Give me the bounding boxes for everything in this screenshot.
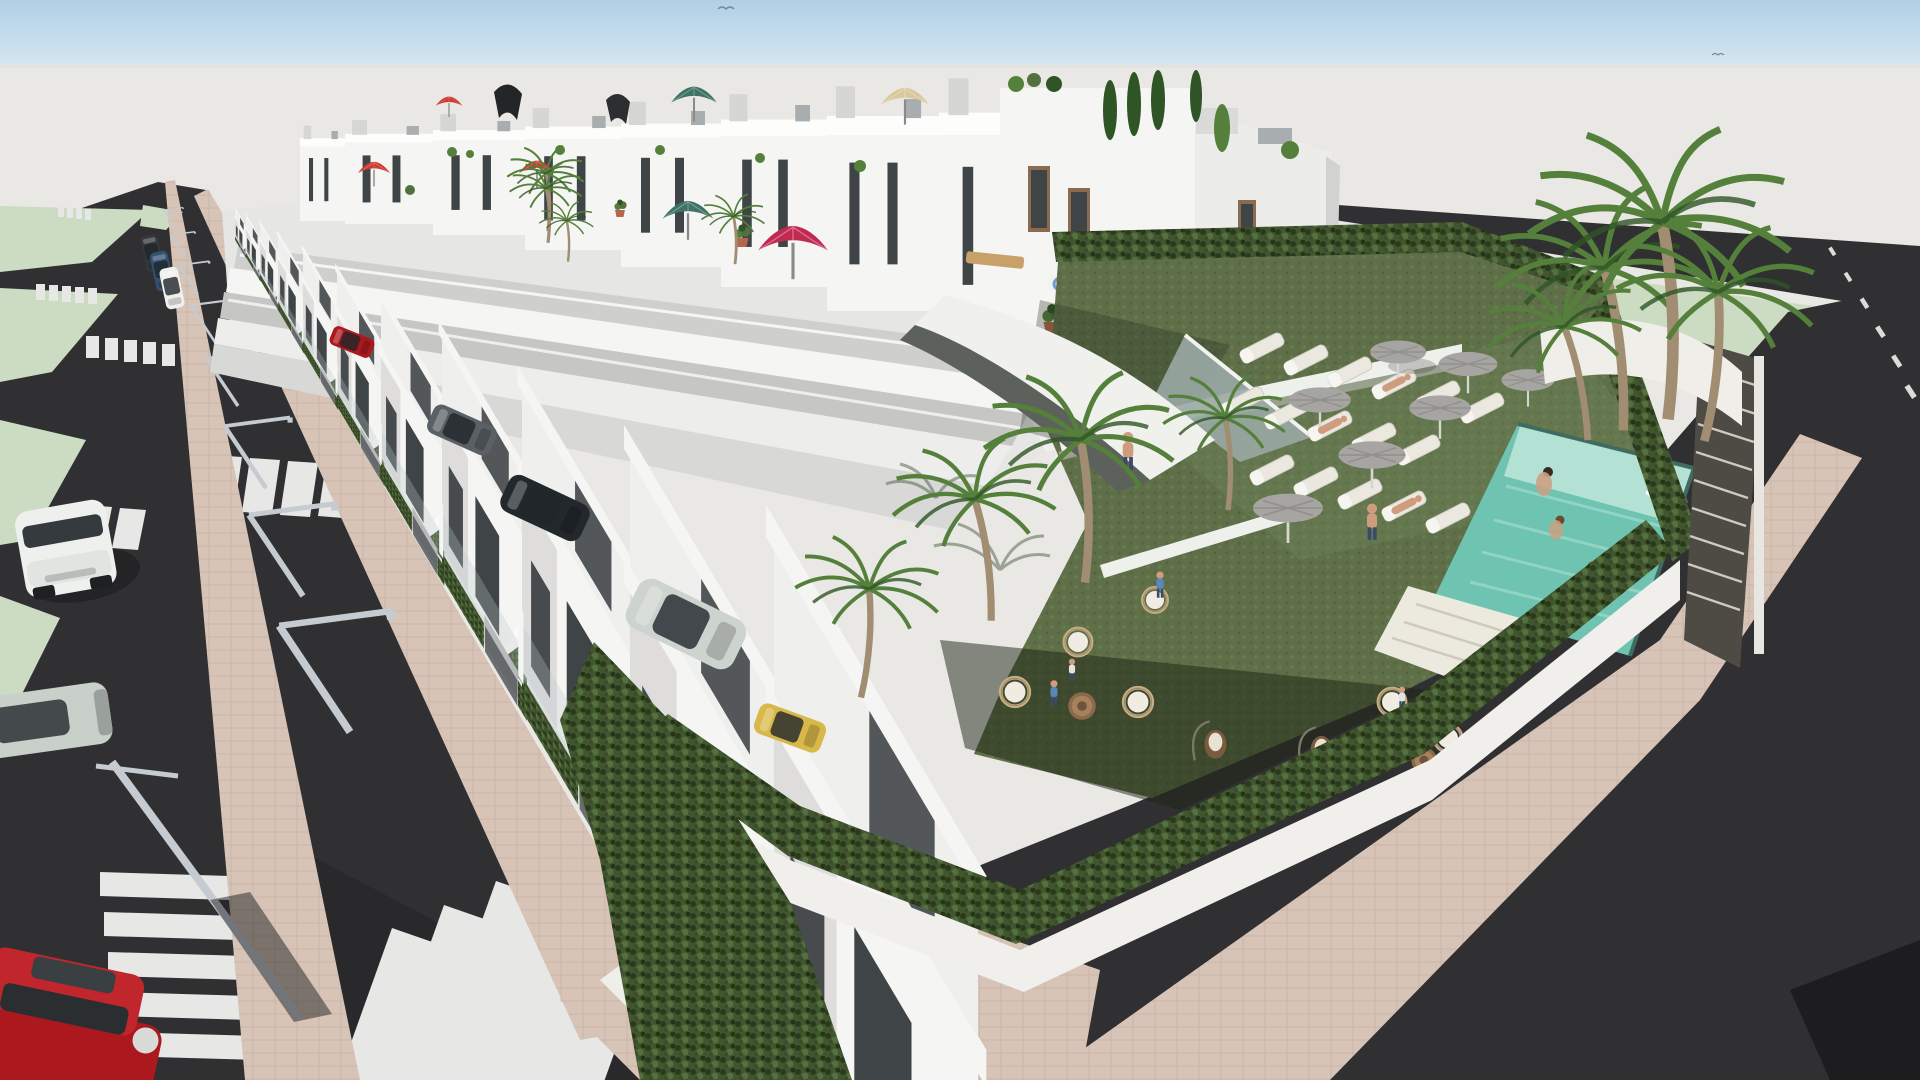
window [1028,166,1050,232]
architectural-render [0,0,1920,1080]
back-townhouse [827,86,939,311]
render-canvas [0,0,1920,1080]
back-townhouse [300,126,345,221]
sky [0,0,1920,68]
back-townhouse [621,102,721,267]
